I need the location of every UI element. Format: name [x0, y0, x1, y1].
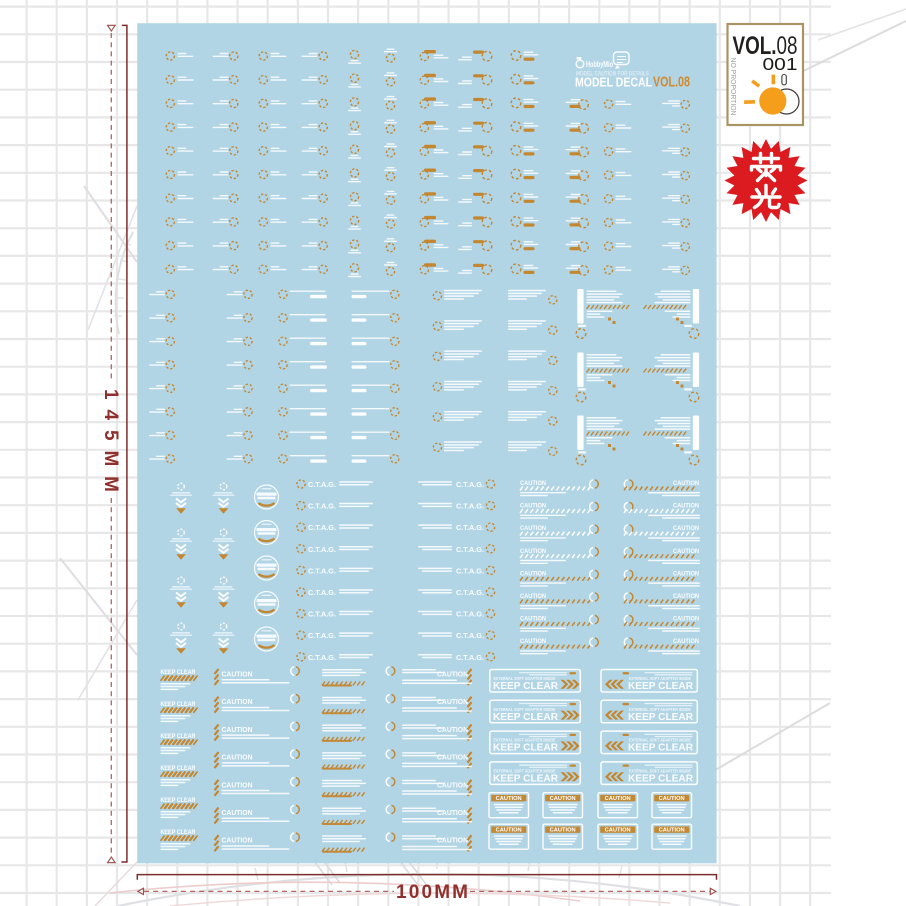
svg-text:CAUTION: CAUTION [659, 828, 685, 834]
svg-text:CAUTION: CAUTION [222, 699, 253, 706]
svg-text:C.T.A.G.: C.T.A.G. [308, 633, 336, 640]
svg-text:CAUTION: CAUTION [550, 828, 576, 834]
svg-text:KEEP CLEAR: KEEP CLEAR [493, 773, 559, 784]
svg-text:CAUTION: CAUTION [605, 828, 631, 834]
svg-text:CAUTION: CAUTION [496, 796, 522, 802]
svg-text:C.T.A.G.: C.T.A.G. [456, 525, 484, 532]
svg-text:CAUTION: CAUTION [673, 525, 699, 532]
svg-text:HobbyMio: HobbyMio [586, 60, 613, 69]
svg-text:CAUTION: CAUTION [520, 638, 546, 645]
svg-text:VOL.08: VOL.08 [653, 74, 690, 91]
svg-text:CAUTION: CAUTION [496, 828, 522, 834]
svg-text:C.T.A.G.: C.T.A.G. [308, 590, 336, 597]
svg-text:CAUTION: CAUTION [520, 503, 546, 510]
svg-text:C.T.A.G.: C.T.A.G. [456, 655, 484, 662]
svg-text:C.T.A.G.: C.T.A.G. [456, 482, 484, 489]
svg-text:CAUTION: CAUTION [437, 810, 468, 817]
svg-text:CAUTION: CAUTION [520, 570, 546, 577]
svg-text:C.T.A.G.: C.T.A.G. [308, 482, 336, 489]
svg-text:C.T.A.G.: C.T.A.G. [456, 590, 484, 597]
svg-text:CAUTION: CAUTION [520, 548, 546, 555]
svg-text:CAUTION: CAUTION [673, 638, 699, 645]
svg-text:KEEP CLEAR: KEEP CLEAR [628, 773, 694, 784]
svg-text:C.T.A.G.: C.T.A.G. [456, 612, 484, 619]
svg-text:KEEP CLEAR: KEEP CLEAR [161, 829, 196, 836]
svg-text:CAUTION: CAUTION [222, 755, 253, 762]
svg-text:CAUTION: CAUTION [673, 503, 699, 510]
svg-text:CAUTION: CAUTION [222, 810, 253, 817]
svg-text:C.T.A.G.: C.T.A.G. [456, 568, 484, 575]
svg-text:CAUTION: CAUTION [659, 796, 685, 802]
svg-text:CAUTION: CAUTION [437, 782, 468, 789]
svg-text:CAUTION: CAUTION [520, 525, 546, 532]
svg-text:KEEP CLEAR: KEEP CLEAR [493, 681, 559, 692]
svg-text:KEEP CLEAR: KEEP CLEAR [161, 701, 196, 708]
svg-text:CAUTION: CAUTION [673, 593, 699, 600]
svg-text:KEEP CLEAR: KEEP CLEAR [161, 765, 196, 772]
svg-text:KEEP CLEAR: KEEP CLEAR [161, 733, 196, 740]
svg-text:KEEP CLEAR: KEEP CLEAR [628, 712, 694, 723]
svg-text:KEEP CLEAR: KEEP CLEAR [161, 797, 196, 804]
svg-text:C.T.A.G.: C.T.A.G. [308, 504, 336, 511]
svg-text:C.T.A.G.: C.T.A.G. [308, 655, 336, 662]
svg-text:CAUTION: CAUTION [222, 727, 253, 734]
svg-text:CAUTION: CAUTION [673, 616, 699, 623]
svg-text:C.T.A.G.: C.T.A.G. [308, 547, 336, 554]
svg-text:CAUTION: CAUTION [437, 699, 468, 706]
svg-text:CAUTION: CAUTION [437, 838, 468, 845]
svg-text:CAUTION: CAUTION [437, 755, 468, 762]
svg-text:C.T.A.G.: C.T.A.G. [308, 525, 336, 532]
svg-text:CAUTION: CAUTION [520, 480, 546, 487]
svg-text:C.T.A.G.: C.T.A.G. [456, 547, 484, 554]
svg-text:CAUTION: CAUTION [673, 548, 699, 555]
svg-text:KEEP CLEAR: KEEP CLEAR [493, 743, 559, 754]
svg-text:KEEP CLEAR: KEEP CLEAR [628, 681, 694, 692]
svg-text:CAUTION: CAUTION [222, 672, 253, 679]
svg-text:C.T.A.G.: C.T.A.G. [456, 504, 484, 511]
svg-text:C.T.A.G.: C.T.A.G. [456, 633, 484, 640]
svg-text:CAUTION: CAUTION [222, 782, 253, 789]
svg-text:CAUTION: CAUTION [605, 796, 631, 802]
svg-text:C.T.A.G.: C.T.A.G. [308, 612, 336, 619]
svg-text:CAUTION: CAUTION [222, 838, 253, 845]
svg-text:CAUTION: CAUTION [673, 570, 699, 577]
svg-text:CAUTION: CAUTION [520, 616, 546, 623]
svg-text:CAUTION: CAUTION [520, 593, 546, 600]
svg-text:KEEP CLEAR: KEEP CLEAR [493, 712, 559, 723]
svg-text:KEEP CLEAR: KEEP CLEAR [628, 743, 694, 754]
svg-text:NO PROPORTION: NO PROPORTION [729, 58, 738, 116]
svg-text:CAUTION: CAUTION [673, 480, 699, 487]
svg-text:CAUTION: CAUTION [550, 796, 576, 802]
svg-text:KEEP CLEAR: KEEP CLEAR [161, 669, 196, 676]
svg-text:CAUTION: CAUTION [437, 672, 468, 679]
svg-text:C.T.A.G.: C.T.A.G. [308, 568, 336, 575]
svg-text:MODEL DECAL: MODEL DECAL [575, 76, 652, 90]
svg-text:001: 001 [763, 54, 798, 74]
svg-text:CAUTION: CAUTION [437, 727, 468, 734]
